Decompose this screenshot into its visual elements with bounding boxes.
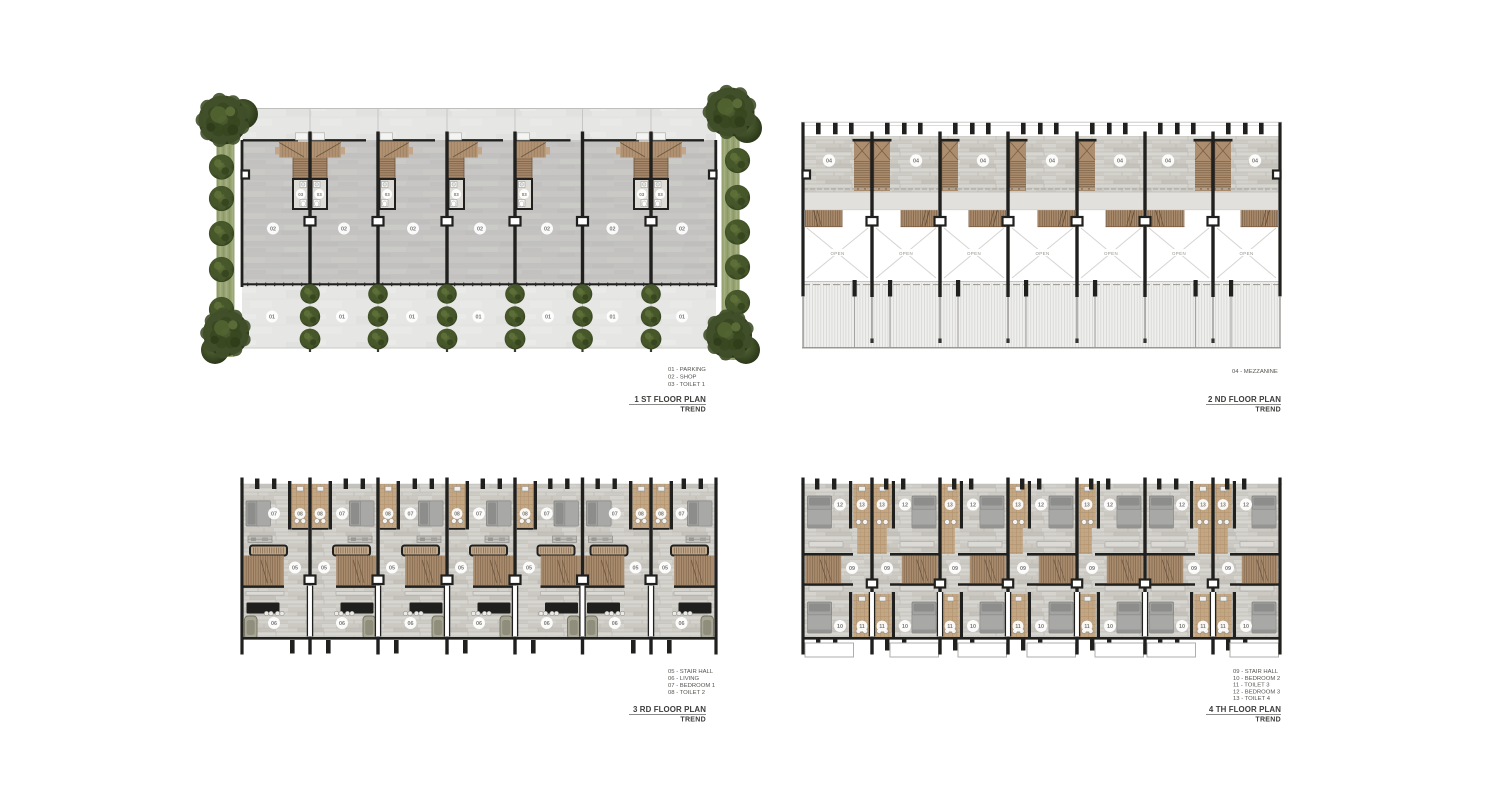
svg-text:02 - SHOP: 02 - SHOP (668, 374, 697, 380)
svg-text:OPEN: OPEN (967, 251, 981, 256)
svg-text:02: 02 (341, 226, 347, 232)
svg-text:11: 11 (1084, 624, 1090, 630)
svg-text:12: 12 (1243, 502, 1249, 508)
svg-text:05: 05 (662, 565, 668, 571)
svg-text:04: 04 (1165, 158, 1171, 164)
svg-text:12: 12 (1038, 502, 1044, 508)
svg-text:05: 05 (321, 565, 327, 571)
svg-text:07: 07 (544, 511, 550, 517)
svg-text:12: 12 (970, 502, 976, 508)
svg-text:01: 01 (679, 314, 685, 320)
svg-text:OPEN: OPEN (830, 251, 844, 256)
svg-text:10: 10 (902, 624, 908, 630)
svg-text:4 TH FLOOR PLAN: 4 TH FLOOR PLAN (1209, 705, 1281, 714)
svg-text:03: 03 (454, 192, 460, 197)
svg-text:07: 07 (339, 511, 345, 517)
svg-text:09: 09 (1020, 566, 1026, 572)
svg-text:11: 11 (1015, 624, 1021, 630)
svg-text:01: 01 (476, 314, 482, 320)
svg-text:13: 13 (947, 502, 953, 508)
svg-text:07: 07 (612, 511, 618, 517)
svg-text:3 RD FLOOR PLAN: 3 RD FLOOR PLAN (633, 705, 706, 714)
svg-text:OPEN: OPEN (1172, 251, 1186, 256)
svg-text:TREND: TREND (1255, 407, 1281, 414)
svg-text:01 - PARKING: 01 - PARKING (668, 367, 706, 373)
svg-text:04: 04 (1252, 158, 1258, 164)
svg-text:13: 13 (1084, 502, 1090, 508)
svg-text:12: 12 (1179, 502, 1185, 508)
svg-text:09: 09 (1225, 566, 1231, 572)
svg-text:06: 06 (271, 621, 277, 627)
svg-text:OPEN: OPEN (1035, 251, 1049, 256)
svg-text:09: 09 (952, 566, 958, 572)
svg-text:06 - LIVING: 06 - LIVING (668, 676, 700, 682)
svg-text:OPEN: OPEN (1239, 251, 1253, 256)
svg-text:01: 01 (545, 314, 551, 320)
svg-text:11: 11 (1220, 624, 1226, 630)
svg-text:04: 04 (980, 158, 986, 164)
svg-text:11: 11 (859, 624, 865, 630)
svg-text:01: 01 (339, 314, 345, 320)
svg-text:05: 05 (633, 565, 639, 571)
svg-text:10: 10 (837, 624, 843, 630)
svg-text:05: 05 (458, 565, 464, 571)
svg-text:OPEN: OPEN (1104, 251, 1118, 256)
svg-text:07: 07 (408, 511, 414, 517)
svg-text:10 - BEDROOM 2: 10 - BEDROOM 2 (1233, 676, 1280, 682)
svg-text:13: 13 (879, 502, 885, 508)
svg-text:04: 04 (1117, 158, 1123, 164)
svg-text:03: 03 (317, 192, 323, 197)
svg-text:12: 12 (837, 502, 843, 508)
svg-text:07: 07 (271, 511, 277, 517)
svg-text:1 ST FLOOR PLAN: 1 ST FLOOR PLAN (634, 395, 706, 404)
svg-text:01: 01 (409, 314, 415, 320)
svg-text:2 ND FLOOR PLAN: 2 ND FLOOR PLAN (1208, 395, 1281, 404)
svg-text:08: 08 (317, 511, 323, 517)
svg-text:07: 07 (476, 511, 482, 517)
svg-text:09: 09 (849, 566, 855, 572)
svg-text:09: 09 (1191, 566, 1197, 572)
svg-text:11: 11 (1200, 624, 1206, 630)
svg-text:03: 03 (522, 192, 528, 197)
svg-text:02: 02 (610, 226, 616, 232)
svg-text:04: 04 (913, 158, 919, 164)
svg-text:12 - BEDROOM 3: 12 - BEDROOM 3 (1233, 689, 1281, 695)
svg-text:10: 10 (970, 624, 976, 630)
svg-text:04: 04 (826, 158, 832, 164)
svg-text:05: 05 (526, 565, 532, 571)
svg-text:08: 08 (454, 511, 460, 517)
svg-text:10: 10 (1038, 624, 1044, 630)
svg-text:13 - TOILET 4: 13 - TOILET 4 (1233, 696, 1271, 702)
svg-text:05 - STAIR HALL: 05 - STAIR HALL (668, 669, 714, 675)
svg-text:11: 11 (879, 624, 885, 630)
svg-text:08: 08 (297, 511, 303, 517)
svg-text:07 - BEDROOM 1: 07 - BEDROOM 1 (668, 683, 715, 689)
svg-text:06: 06 (408, 621, 414, 627)
svg-text:11: 11 (947, 624, 953, 630)
svg-text:09: 09 (1089, 566, 1095, 572)
svg-text:02: 02 (270, 226, 276, 232)
svg-text:10: 10 (1243, 624, 1249, 630)
svg-text:09: 09 (884, 566, 890, 572)
svg-text:03: 03 (658, 192, 664, 197)
svg-text:02: 02 (679, 226, 685, 232)
svg-text:13: 13 (1015, 502, 1021, 508)
svg-text:03: 03 (385, 192, 391, 197)
svg-text:06: 06 (679, 621, 685, 627)
svg-text:02: 02 (410, 226, 416, 232)
svg-text:TREND: TREND (1255, 717, 1281, 724)
svg-text:07: 07 (679, 511, 685, 517)
svg-text:08 - TOILET 2: 08 - TOILET 2 (668, 690, 705, 696)
svg-text:13: 13 (859, 502, 865, 508)
svg-text:12: 12 (1107, 502, 1113, 508)
svg-text:OPEN: OPEN (899, 251, 913, 256)
svg-text:10: 10 (1107, 624, 1113, 630)
svg-text:09 - STAIR HALL: 09 - STAIR HALL (1233, 669, 1279, 675)
svg-text:05: 05 (389, 565, 395, 571)
svg-text:08: 08 (522, 511, 528, 517)
svg-text:06: 06 (339, 621, 345, 627)
svg-text:04 - MEZZANINE: 04 - MEZZANINE (1232, 369, 1278, 375)
svg-text:03 - TOILET 1: 03 - TOILET 1 (668, 382, 705, 388)
svg-text:06: 06 (544, 621, 550, 627)
svg-text:13: 13 (1220, 502, 1226, 508)
svg-text:08: 08 (385, 511, 391, 517)
svg-text:10: 10 (1179, 624, 1185, 630)
svg-text:06: 06 (612, 621, 618, 627)
svg-text:08: 08 (658, 511, 664, 517)
svg-text:01: 01 (269, 314, 275, 320)
svg-text:02: 02 (477, 226, 483, 232)
svg-text:05: 05 (292, 565, 298, 571)
svg-text:12: 12 (902, 502, 908, 508)
svg-text:02: 02 (544, 226, 550, 232)
svg-text:03: 03 (298, 192, 304, 197)
svg-text:TREND: TREND (680, 717, 706, 724)
svg-text:11 - TOILET 3: 11 - TOILET 3 (1233, 683, 1270, 689)
svg-text:08: 08 (638, 511, 644, 517)
svg-text:13: 13 (1200, 502, 1206, 508)
svg-text:04: 04 (1049, 158, 1055, 164)
svg-text:TREND: TREND (680, 407, 706, 414)
svg-text:06: 06 (476, 621, 482, 627)
svg-text:03: 03 (639, 192, 645, 197)
svg-text:01: 01 (610, 314, 616, 320)
